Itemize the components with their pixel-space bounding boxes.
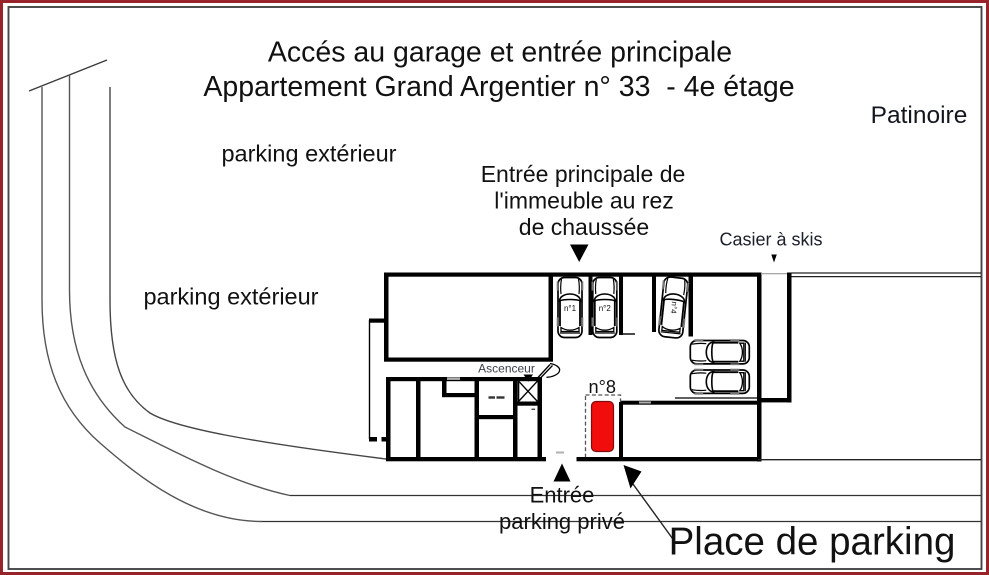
svg-text:Accés au garage et entrée prin: Accés au garage et entrée principale bbox=[268, 36, 732, 68]
svg-text:Appartement Grand Argentier n°: Appartement Grand Argentier n° 33 - 4e é… bbox=[203, 71, 794, 103]
svg-text:Entrée principale de: Entrée principale de bbox=[481, 161, 686, 187]
svg-text:Patinoire: Patinoire bbox=[871, 102, 968, 129]
svg-text:n°2: n°2 bbox=[599, 304, 612, 313]
svg-text:de chaussée: de chaussée bbox=[519, 214, 649, 240]
svg-text:n°8: n°8 bbox=[589, 377, 617, 397]
svg-text:l'immeuble au rez: l'immeuble au rez bbox=[494, 188, 674, 214]
svg-text:Entrée: Entrée bbox=[530, 483, 595, 508]
svg-text:parking privé: parking privé bbox=[499, 509, 625, 534]
svg-text:n°1: n°1 bbox=[564, 304, 577, 313]
svg-text:parking extérieur: parking extérieur bbox=[221, 140, 396, 166]
svg-text:n°4: n°4 bbox=[669, 301, 679, 315]
svg-text:Place de parking: Place de parking bbox=[669, 521, 956, 564]
svg-text:Ascenceur: Ascenceur bbox=[478, 361, 535, 375]
svg-text:parking extérieur: parking extérieur bbox=[143, 283, 318, 309]
svg-text:Casier à skis: Casier à skis bbox=[719, 230, 822, 250]
